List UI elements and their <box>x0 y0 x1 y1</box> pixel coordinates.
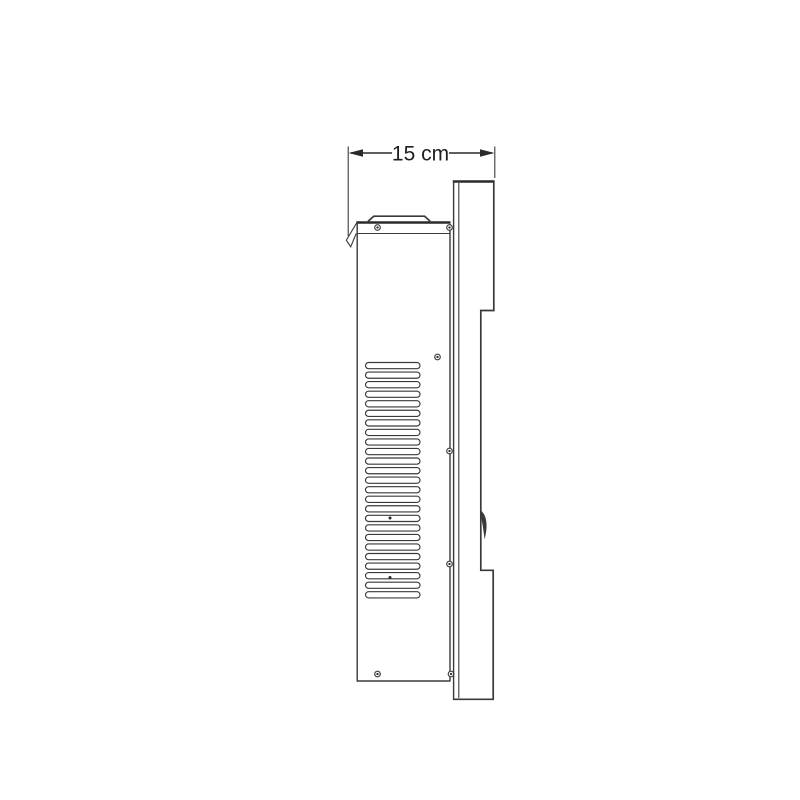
screws <box>375 225 454 677</box>
vent-slot <box>366 487 421 493</box>
vent-slot <box>366 544 421 550</box>
screw-center <box>450 673 452 675</box>
figure-canvas: 15 cm <box>0 0 800 800</box>
dimension-arrow-left <box>349 149 364 156</box>
screw <box>447 225 453 231</box>
vent-grille <box>366 363 421 598</box>
vent-slot <box>366 582 421 588</box>
vent-slot <box>366 429 421 435</box>
vent-slot <box>366 391 421 397</box>
screw-center <box>436 356 438 358</box>
vent-slot <box>366 592 421 598</box>
technical-drawing: 15 cm <box>0 0 800 800</box>
vent-slot <box>366 525 421 531</box>
dimension-arrow-right <box>480 149 495 156</box>
screw <box>375 671 381 677</box>
screw-center <box>376 673 378 675</box>
vent-slot <box>366 573 421 579</box>
vent-slot <box>366 439 421 445</box>
rivet <box>389 576 392 579</box>
vent-slot <box>366 477 421 483</box>
vent-slot <box>366 458 421 464</box>
vent-slot <box>366 401 421 407</box>
screw-center <box>448 450 450 452</box>
vent-slot <box>366 363 421 369</box>
vent-slot <box>366 554 421 560</box>
vent-slot <box>366 420 421 426</box>
screw <box>447 448 453 454</box>
vent-slot <box>366 506 421 512</box>
rivet <box>389 517 392 520</box>
screw-center <box>448 563 450 565</box>
vent-slot <box>366 534 421 540</box>
panel-right-profile <box>481 182 494 700</box>
screw <box>435 354 441 360</box>
vent-slot <box>366 496 421 502</box>
vent-slot <box>366 515 421 521</box>
vent-slot <box>366 372 421 378</box>
vent-slot <box>366 410 421 416</box>
vent-slot <box>366 382 421 388</box>
screw-center <box>448 226 450 228</box>
vent-slot <box>366 448 421 454</box>
screw <box>447 561 453 567</box>
top-hanging-bracket <box>368 216 430 221</box>
dimension-label: 15 cm <box>392 143 449 166</box>
vent-slot <box>366 468 421 474</box>
screw <box>375 225 381 231</box>
screw-center <box>376 226 378 228</box>
front-panel <box>453 181 495 700</box>
vent-slot <box>366 563 421 569</box>
